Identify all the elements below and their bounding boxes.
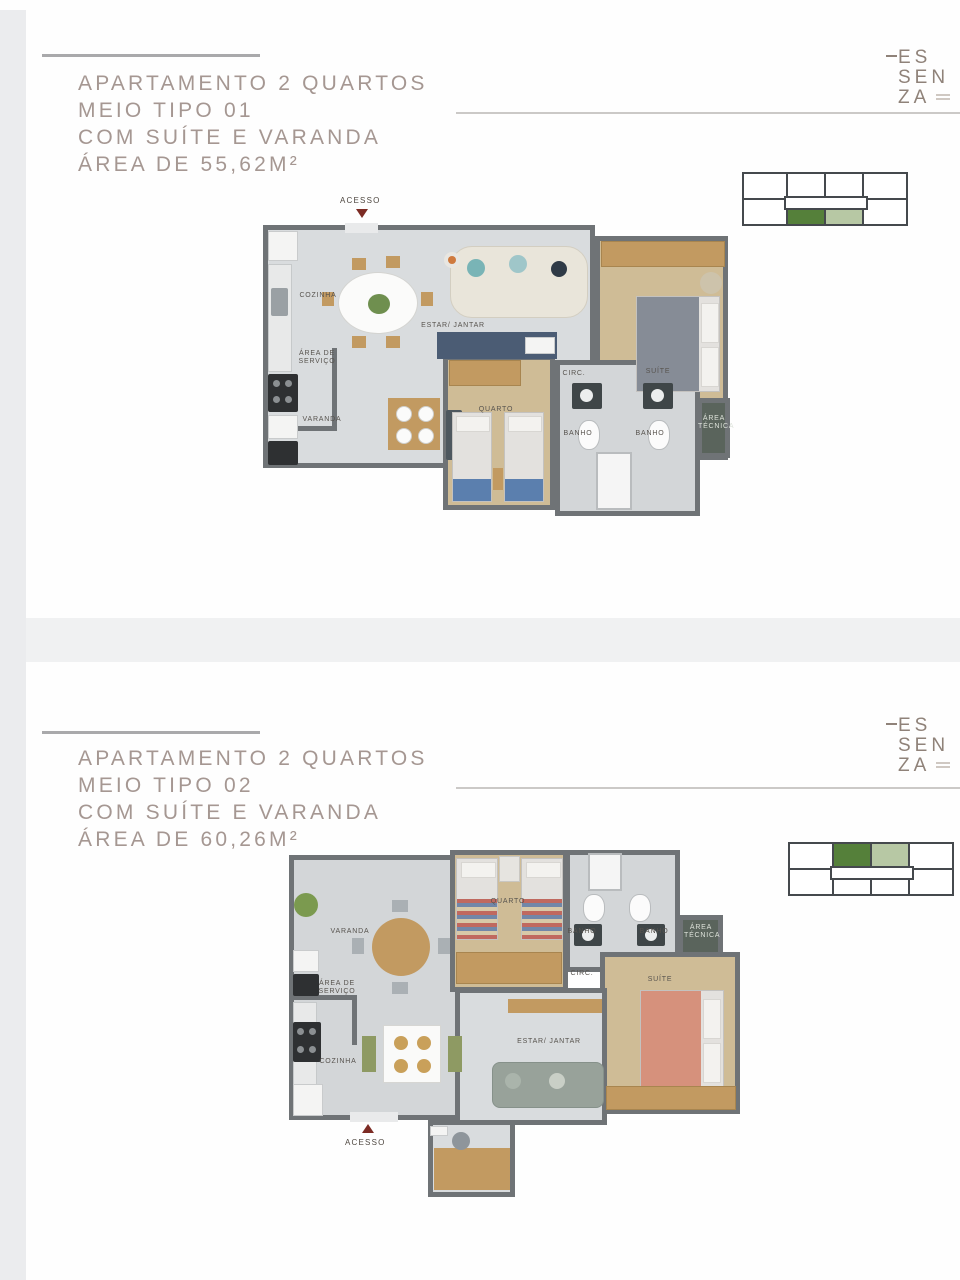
label-circ: CIRC. (558, 370, 590, 378)
wall-board (430, 1126, 448, 1136)
logo-line: SEN (886, 68, 949, 88)
label-area-tecnica: ÁREA TÉCNICA (698, 415, 730, 431)
varanda-chair (438, 938, 450, 954)
title-line: COM SUÍTE E VARANDA (78, 124, 428, 151)
logo-line: SEN (886, 736, 949, 756)
laundry-tank (268, 415, 298, 439)
sofa-curved (450, 246, 588, 318)
access-label: ACESSO (340, 196, 381, 205)
toilet (629, 894, 651, 922)
double-bed (636, 296, 720, 392)
bath-vanity (572, 383, 602, 409)
building-keyplan-1 (742, 172, 910, 234)
dining-chair (386, 336, 400, 348)
dining-chair (362, 1036, 376, 1072)
bath-vanity (643, 383, 673, 409)
dining-chair (386, 256, 400, 268)
dining-chair (421, 292, 433, 306)
label-banho: BANHO (636, 928, 672, 936)
dining-table-round (338, 272, 418, 334)
label-estar-jantar: ESTAR/ JANTAR (514, 1038, 584, 1046)
fridge (293, 1084, 323, 1116)
watermark-band (26, 618, 960, 662)
keyplan-unit (788, 842, 834, 870)
dining-chair (352, 258, 366, 270)
label-suite: SUÍTE (640, 976, 680, 984)
title-line: ÁREA DE 55,62M² (78, 151, 428, 178)
single-bed (452, 412, 492, 502)
title-line: APARTAMENTO 2 QUARTOS (78, 745, 428, 772)
dining-chair (352, 336, 366, 348)
access-arrow-icon (362, 1124, 374, 1133)
kitchen-sink (271, 288, 288, 316)
varanda-chair (392, 900, 408, 912)
nightstand (499, 856, 520, 882)
stove (268, 374, 298, 412)
label-cozinha: COZINHA (296, 292, 340, 300)
side-table (444, 252, 460, 268)
suite-wardrobe (606, 1086, 736, 1110)
label-banho: BANHO (560, 430, 596, 438)
double-bed (640, 990, 724, 1090)
label-suite: SUÍTE (638, 368, 678, 376)
keyplan-unit (788, 868, 834, 896)
section2-header-rule (456, 787, 960, 789)
title-line: ÁREA DE 60,26M² (78, 826, 428, 853)
desk (434, 1148, 510, 1190)
label-cozinha: COZINHA (316, 1058, 360, 1066)
kitchen-counter (268, 264, 292, 372)
varanda-table-round (372, 918, 430, 976)
access-label: ACESSO (345, 1138, 386, 1147)
varanda-chair (392, 982, 408, 994)
building-keyplan-2 (788, 842, 956, 904)
keyplan-unit (908, 868, 954, 896)
logo-dash (886, 55, 897, 57)
floorplan-sheet: APARTAMENTO 2 QUARTOS MEIO TIPO 01 COM S… (0, 0, 960, 1280)
toilet (583, 894, 605, 922)
washer (268, 441, 298, 465)
keyplan-corridor (784, 196, 868, 210)
keyplan-unit (742, 198, 788, 226)
title-line: APARTAMENTO 2 QUARTOS (78, 70, 428, 97)
access-arrow-icon (356, 209, 368, 218)
tv (525, 337, 555, 354)
keyplan-unit (908, 842, 954, 870)
logo-subtext (936, 94, 950, 102)
logo-dash (886, 723, 897, 725)
label-banho: BANHO (564, 928, 600, 936)
section1-rule (42, 54, 260, 57)
varanda-table (388, 398, 440, 450)
logo-subtext (936, 762, 950, 770)
sofa (492, 1062, 604, 1108)
label-area-servico: ÁREA DE SERVIÇO (296, 350, 338, 366)
fridge (268, 231, 298, 261)
label-varanda: VARANDA (296, 416, 348, 424)
keyplan-unit (862, 198, 908, 226)
shower (588, 853, 622, 891)
nightstand (493, 468, 503, 490)
sideboard (508, 999, 602, 1013)
label-quarto: QUARTO (472, 406, 520, 414)
pouf (700, 272, 722, 294)
dining-table-square (383, 1025, 441, 1083)
keyplan-unit (742, 172, 788, 200)
varanda-chair (352, 938, 364, 954)
wardrobe (449, 360, 521, 386)
logo-line: ES (898, 715, 931, 736)
label-varanda: VARANDA (324, 928, 376, 936)
label-quarto: QUARTO (484, 898, 532, 906)
section1-title: APARTAMENTO 2 QUARTOS MEIO TIPO 01 COM S… (78, 70, 428, 178)
keyplan-corridor (830, 866, 914, 880)
section1-header-rule (456, 112, 960, 114)
label-area-servico: ÁREA DE SERVIÇO (316, 980, 358, 996)
label-banho: BANHO (632, 430, 668, 438)
label-estar-jantar: ESTAR/ JANTAR (418, 322, 488, 330)
title-line: MEIO TIPO 02 (78, 772, 428, 799)
plant (294, 893, 318, 917)
stove (293, 1022, 321, 1062)
label-area-tecnica: ÁREA TÉCNICA (684, 924, 718, 940)
dining-chair (448, 1036, 462, 1072)
section2-rule (42, 731, 260, 734)
desk-chair (452, 1132, 470, 1150)
keyplan-unit (862, 172, 908, 200)
label-circ: CIRC. (566, 970, 598, 978)
title-line: COM SUÍTE E VARANDA (78, 799, 428, 826)
wardrobe (456, 952, 562, 984)
laundry-tank (293, 950, 319, 972)
logo-line: ES (898, 47, 931, 68)
suite-wardrobe (601, 241, 725, 267)
section2-title: APARTAMENTO 2 QUARTOS MEIO TIPO 02 COM S… (78, 745, 428, 853)
entry-door-gap (345, 223, 378, 233)
shower (596, 452, 632, 510)
entry-door-gap (350, 1112, 398, 1122)
title-line: MEIO TIPO 01 (78, 97, 428, 124)
inner-wall (352, 995, 357, 1045)
single-bed (504, 412, 544, 502)
page-edge (0, 10, 26, 1280)
